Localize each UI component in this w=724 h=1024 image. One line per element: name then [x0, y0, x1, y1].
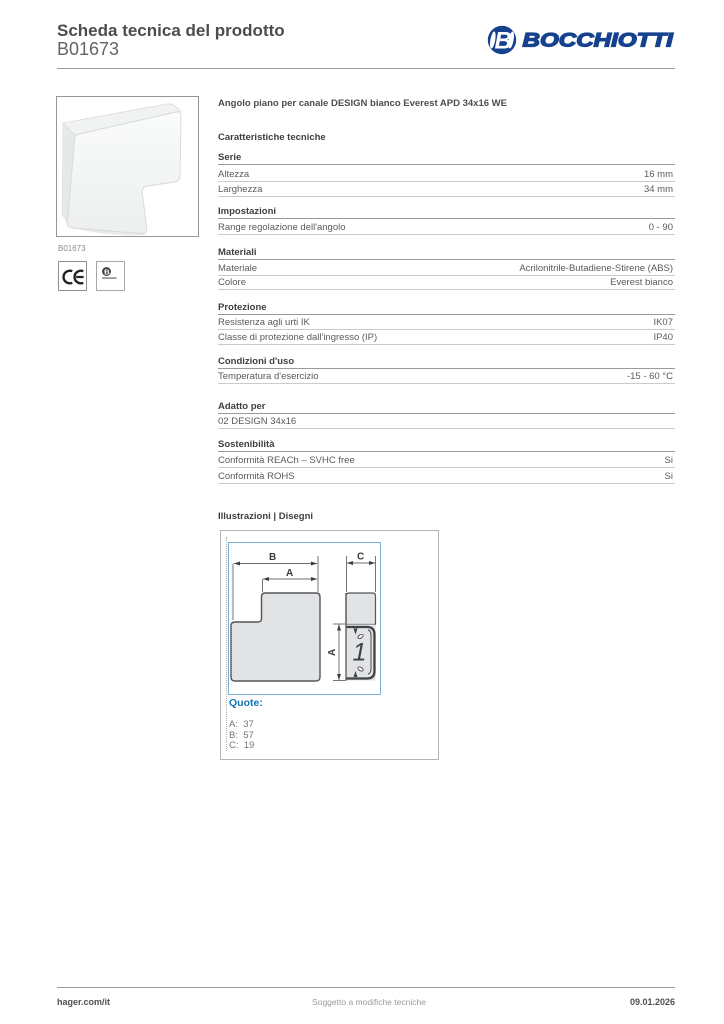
svg-text:B: B [495, 28, 512, 55]
svg-text:B: B [269, 552, 276, 563]
svg-text:B: B [104, 267, 110, 276]
svg-text:1: 1 [353, 639, 367, 667]
svg-text:C: C [357, 552, 364, 563]
svg-text:BOCCHIOTTI: BOCCHIOTTI [523, 29, 674, 51]
svg-text:A: A [286, 568, 293, 579]
svg-text:A: A [327, 649, 338, 656]
